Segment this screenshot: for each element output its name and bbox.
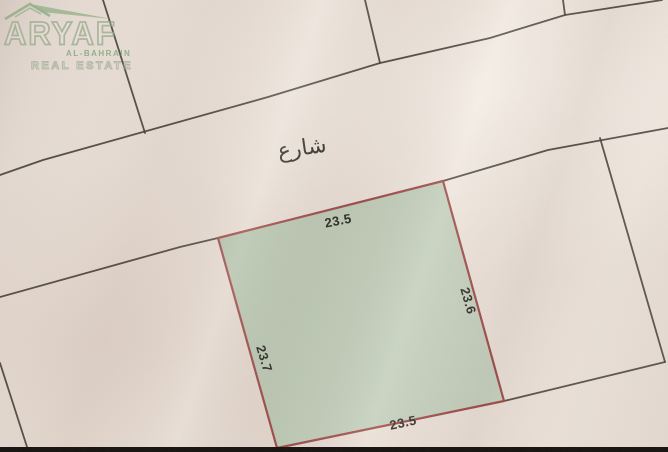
- brand-tagline: REAL ESTATE: [31, 61, 152, 72]
- agency-watermark: ARYAF AL-BAHRAIN REAL ESTATE: [2, 2, 152, 72]
- plot-map-photo: 23.5 23.6 23.7 23.5 شارع ARYAF AL-BAHRAI…: [0, 0, 668, 452]
- photo-bottom-strip: [0, 447, 668, 452]
- brand-name: ARYAF: [4, 17, 152, 50]
